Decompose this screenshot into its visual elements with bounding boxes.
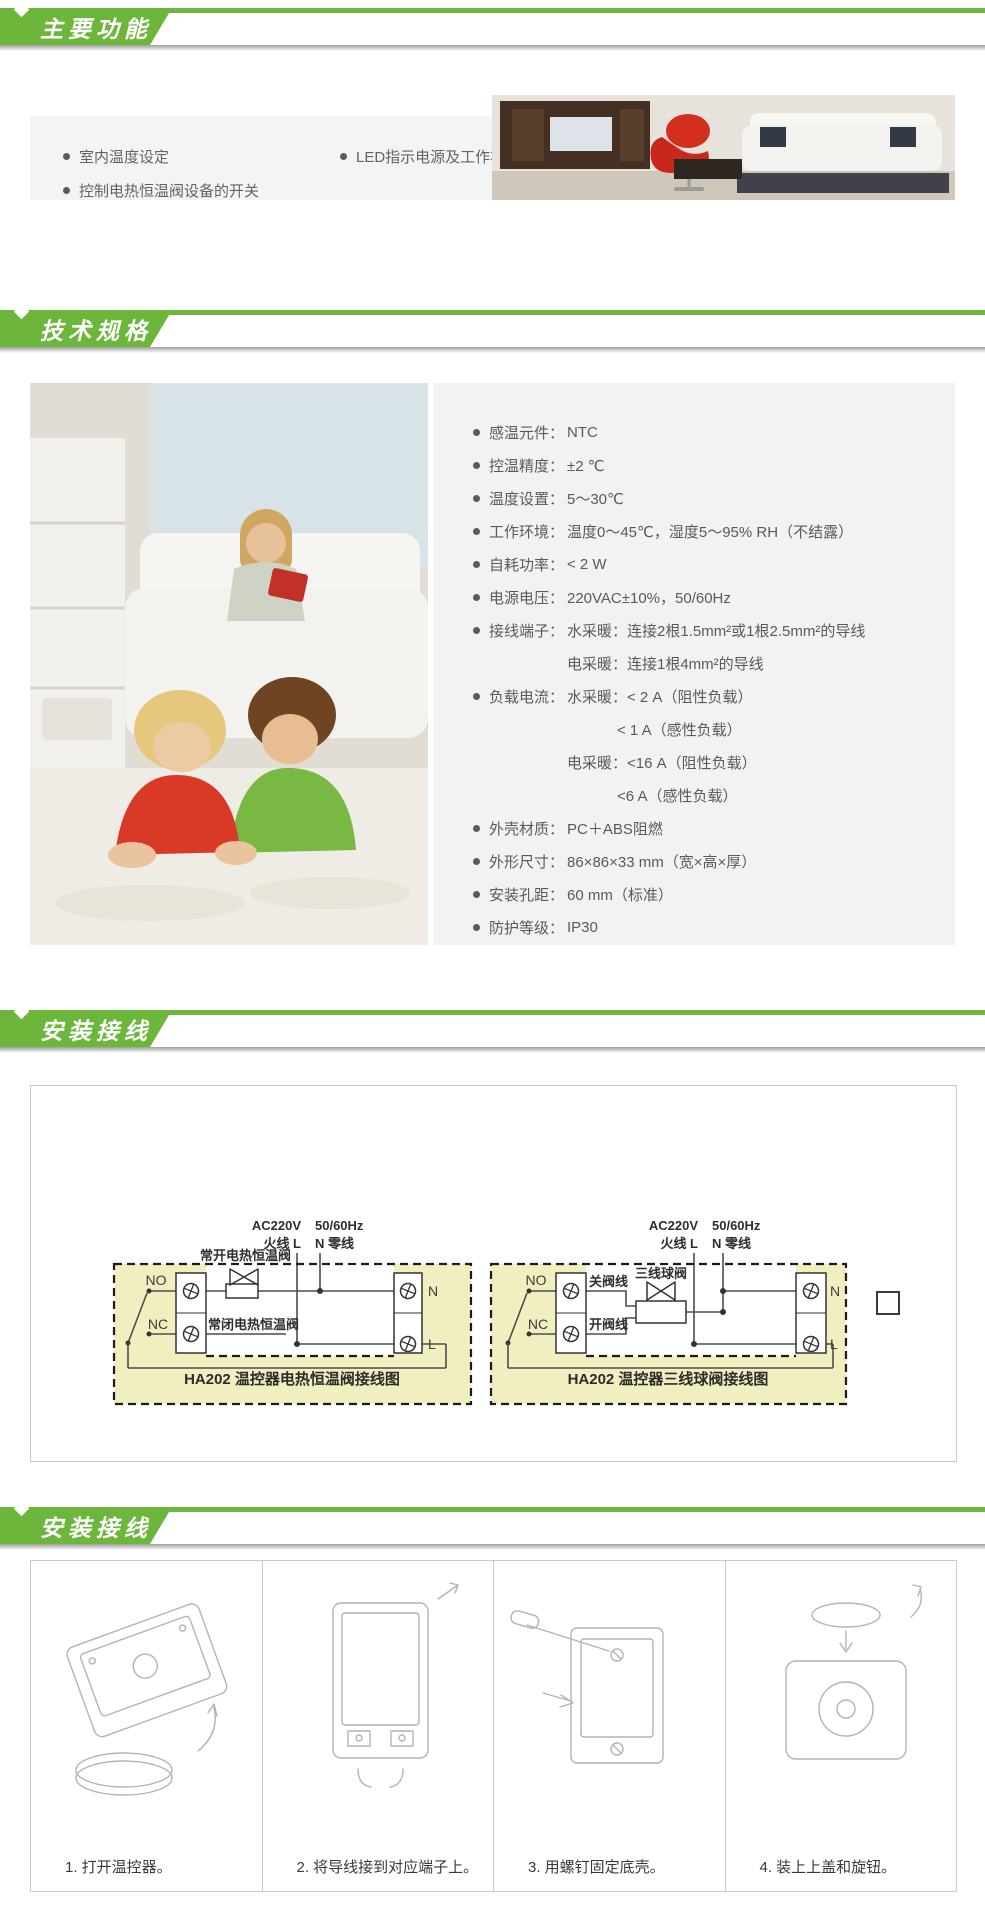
product-detail-page: 主要功能 室内温度设定 控制电热恒温阀设备的开关 LED指示电源及工作状态: [0, 0, 985, 1924]
spec-label: 接线端子：: [489, 620, 567, 641]
wiring-diagram-box: AC220V 50/60Hz 火线 L N 零线 常开电热恒温阀 常闭电热恒温阀: [30, 1085, 957, 1462]
spec-row: <6 A（感性负载）: [473, 779, 865, 812]
diagram-caption: HA202 温控器电热恒温阀接线图: [184, 1370, 400, 1388]
spec-row: 电采暖：连接1根4mm²的导线: [473, 647, 865, 680]
spec-row: 工作环境：温度0～45℃，湿度5～95% RH（不结露）: [473, 515, 865, 548]
step-panel-3: 3. 用螺钉固定底壳。: [493, 1561, 725, 1891]
spec-label: 感温元件：: [489, 422, 567, 443]
living-room-photo: [492, 95, 955, 200]
step-caption-4: 4. 装上上盖和旋钮。: [760, 1856, 897, 1877]
banner-wiring: 安装接线: [0, 1010, 985, 1054]
label-freq: 50/60Hz: [315, 1218, 364, 1233]
spec-label: 工作环境：: [489, 521, 567, 542]
bullet-icon: [473, 561, 480, 568]
banner-flag: 技术规格: [0, 310, 172, 347]
banner-installation: 安装接线: [0, 1507, 985, 1551]
wiring-diagram-electrothermal-valve: AC220V 50/60Hz 火线 L N 零线 常开电热恒温阀 常闭电热恒温阀: [96, 1191, 476, 1416]
step-caption-1: 1. 打开温控器。: [65, 1856, 172, 1877]
spec-value: <6 A（感性负载）: [617, 785, 737, 806]
label-neutral: N 零线: [712, 1236, 751, 1251]
terminal-n: N: [830, 1283, 840, 1299]
terminal-l: L: [830, 1336, 838, 1352]
step-1-illustration: [46, 1573, 246, 1833]
label-nc-valve: 常闭电热恒温阀: [208, 1317, 299, 1332]
spec-row: 控温精度：±2 ℃: [473, 449, 865, 482]
wiring-diagram-ball-valve: AC220V 50/60Hz 火线 L N 零线 三线球阀 关阀线 开阀线: [481, 1191, 881, 1416]
step-panel-4: 4. 装上上盖和旋钮。: [725, 1561, 957, 1891]
bullet-icon: [473, 924, 480, 931]
features-column-left: 室内温度设定 控制电热恒温阀设备的开关: [63, 139, 259, 207]
spec-row: 安装孔距：60 mm（标准）: [473, 878, 865, 911]
label-ac: AC220V: [252, 1218, 301, 1233]
label-ball-valve: 三线球阀: [635, 1266, 687, 1281]
spec-label: 电源电压：: [489, 587, 567, 608]
kids-photo: [30, 383, 428, 945]
bullet-icon: [473, 825, 480, 832]
bullet-icon: [473, 693, 480, 700]
feature-item: 室内温度设定: [63, 139, 259, 173]
banner-flag: 主要功能: [0, 8, 172, 45]
step-2-illustration: [278, 1573, 478, 1833]
spec-label: 安装孔距：: [489, 884, 567, 905]
label-close-wire: 关阀线: [589, 1274, 628, 1289]
spec-value: 86×86×33 mm（宽×高×厚）: [567, 851, 756, 872]
specs-list: 感温元件：NTC控温精度：±2 ℃温度设置：5～30℃工作环境：温度0～45℃，…: [473, 416, 865, 944]
spec-value: NTC: [567, 424, 598, 441]
spec-label: 负载电流：: [489, 686, 567, 707]
banner-shadow: [0, 1544, 985, 1550]
step-panel-1: 1. 打开温控器。: [31, 1561, 262, 1891]
label-neutral: N 零线: [315, 1236, 354, 1251]
terminal-l: L: [428, 1336, 436, 1352]
spec-row: 防护等级：IP30: [473, 911, 865, 944]
bullet-icon: [473, 627, 480, 634]
bullet-icon: [473, 858, 480, 865]
spec-label: 温度设置：: [489, 488, 567, 509]
spec-row: 电采暖：<16 A（阻性负载）: [473, 746, 865, 779]
spec-row: 电源电压：220VAC±10%，50/60Hz: [473, 581, 865, 614]
label-no-valve: 常开电热恒温阀: [200, 1248, 291, 1263]
bullet-icon: [63, 153, 70, 160]
terminal-nc: NC: [148, 1316, 168, 1332]
step-panel-2: 2. 将导线接到对应端子上。: [262, 1561, 494, 1891]
step-caption-2: 2. 将导线接到对应端子上。: [297, 1856, 479, 1877]
banner-specifications: 技术规格: [0, 310, 985, 354]
spec-label: 外形尺寸：: [489, 851, 567, 872]
bullet-icon: [473, 462, 480, 469]
installation-steps-box: 1. 打开温控器。 2. 将导线接到对应端子上。: [30, 1560, 957, 1892]
spec-value: 60 mm（标准）: [567, 884, 673, 905]
spec-label: 防护等级：: [489, 917, 567, 938]
feature-text: 室内温度设定: [79, 146, 169, 167]
spec-value: 水采暖：连接2根1.5mm²或1根2.5mm²的导线: [567, 620, 865, 641]
banner-flag: 安装接线: [0, 1010, 172, 1047]
spec-label: 自耗功率：: [489, 554, 567, 575]
spec-row: 外壳材质：PC＋ABS阻燃: [473, 812, 865, 845]
banner-flag: 安装接线: [0, 1507, 172, 1544]
banner-main-functions: 主要功能: [0, 8, 985, 52]
spec-value: 电采暖：<16 A（阻性负载）: [567, 752, 757, 773]
terminal-no: NO: [526, 1272, 547, 1288]
specs-panel: 感温元件：NTC控温精度：±2 ℃温度设置：5～30℃工作环境：温度0～45℃，…: [433, 383, 955, 945]
label-open-wire: 开阀线: [589, 1317, 628, 1332]
bullet-icon: [473, 528, 480, 535]
feature-item: 控制电热恒温阀设备的开关: [63, 173, 259, 207]
bullet-icon: [340, 153, 347, 160]
bullet-icon: [63, 187, 70, 194]
bullet-icon: [473, 594, 480, 601]
spec-value: 5～30℃: [567, 488, 624, 509]
spec-value: 电采暖：连接1根4mm²的导线: [567, 653, 764, 674]
step-4-illustration: [741, 1573, 941, 1833]
small-square-icon: [876, 1291, 900, 1315]
terminal-nc: NC: [528, 1316, 548, 1332]
spec-value: 温度0～45℃，湿度5～95% RH（不结露）: [567, 521, 853, 542]
banner-shadow: [0, 347, 985, 353]
feature-text: 控制电热恒温阀设备的开关: [79, 180, 259, 201]
spec-row: 外形尺寸：86×86×33 mm（宽×高×厚）: [473, 845, 865, 878]
terminal-no: NO: [146, 1272, 167, 1288]
spec-value: ±2 ℃: [567, 457, 605, 475]
spec-value: < 2 W: [567, 556, 607, 573]
spec-row: < 1 A（感性负载）: [473, 713, 865, 746]
terminal-n: N: [428, 1283, 438, 1299]
label-freq: 50/60Hz: [712, 1218, 761, 1233]
spec-row: 接线端子：水采暖：连接2根1.5mm²或1根2.5mm²的导线: [473, 614, 865, 647]
spec-value: IP30: [567, 919, 598, 936]
spec-value: < 1 A（感性负载）: [617, 719, 742, 740]
bullet-icon: [473, 495, 480, 502]
spec-row: 自耗功率：< 2 W: [473, 548, 865, 581]
spec-value: PC＋ABS阻燃: [567, 818, 663, 839]
spec-value: 220VAC±10%，50/60Hz: [567, 587, 731, 608]
bullet-icon: [473, 891, 480, 898]
diagram-caption: HA202 温控器三线球阀接线图: [568, 1370, 769, 1388]
banner-shadow: [0, 1047, 985, 1053]
banner-shadow: [0, 45, 985, 51]
step-caption-3: 3. 用螺钉固定底壳。: [528, 1856, 665, 1877]
spec-value: 水采暖：< 2 A（阻性负载）: [567, 686, 752, 707]
spec-row: 温度设置：5～30℃: [473, 482, 865, 515]
spec-row: 负载电流：水采暖：< 2 A（阻性负载）: [473, 680, 865, 713]
spec-label: 外壳材质：: [489, 818, 567, 839]
label-live: 火线 L: [660, 1236, 698, 1251]
label-ac: AC220V: [649, 1218, 698, 1233]
spec-row: 感温元件：NTC: [473, 416, 865, 449]
spec-label: 控温精度：: [489, 455, 567, 476]
step-3-illustration: [509, 1573, 709, 1833]
bullet-icon: [473, 429, 480, 436]
